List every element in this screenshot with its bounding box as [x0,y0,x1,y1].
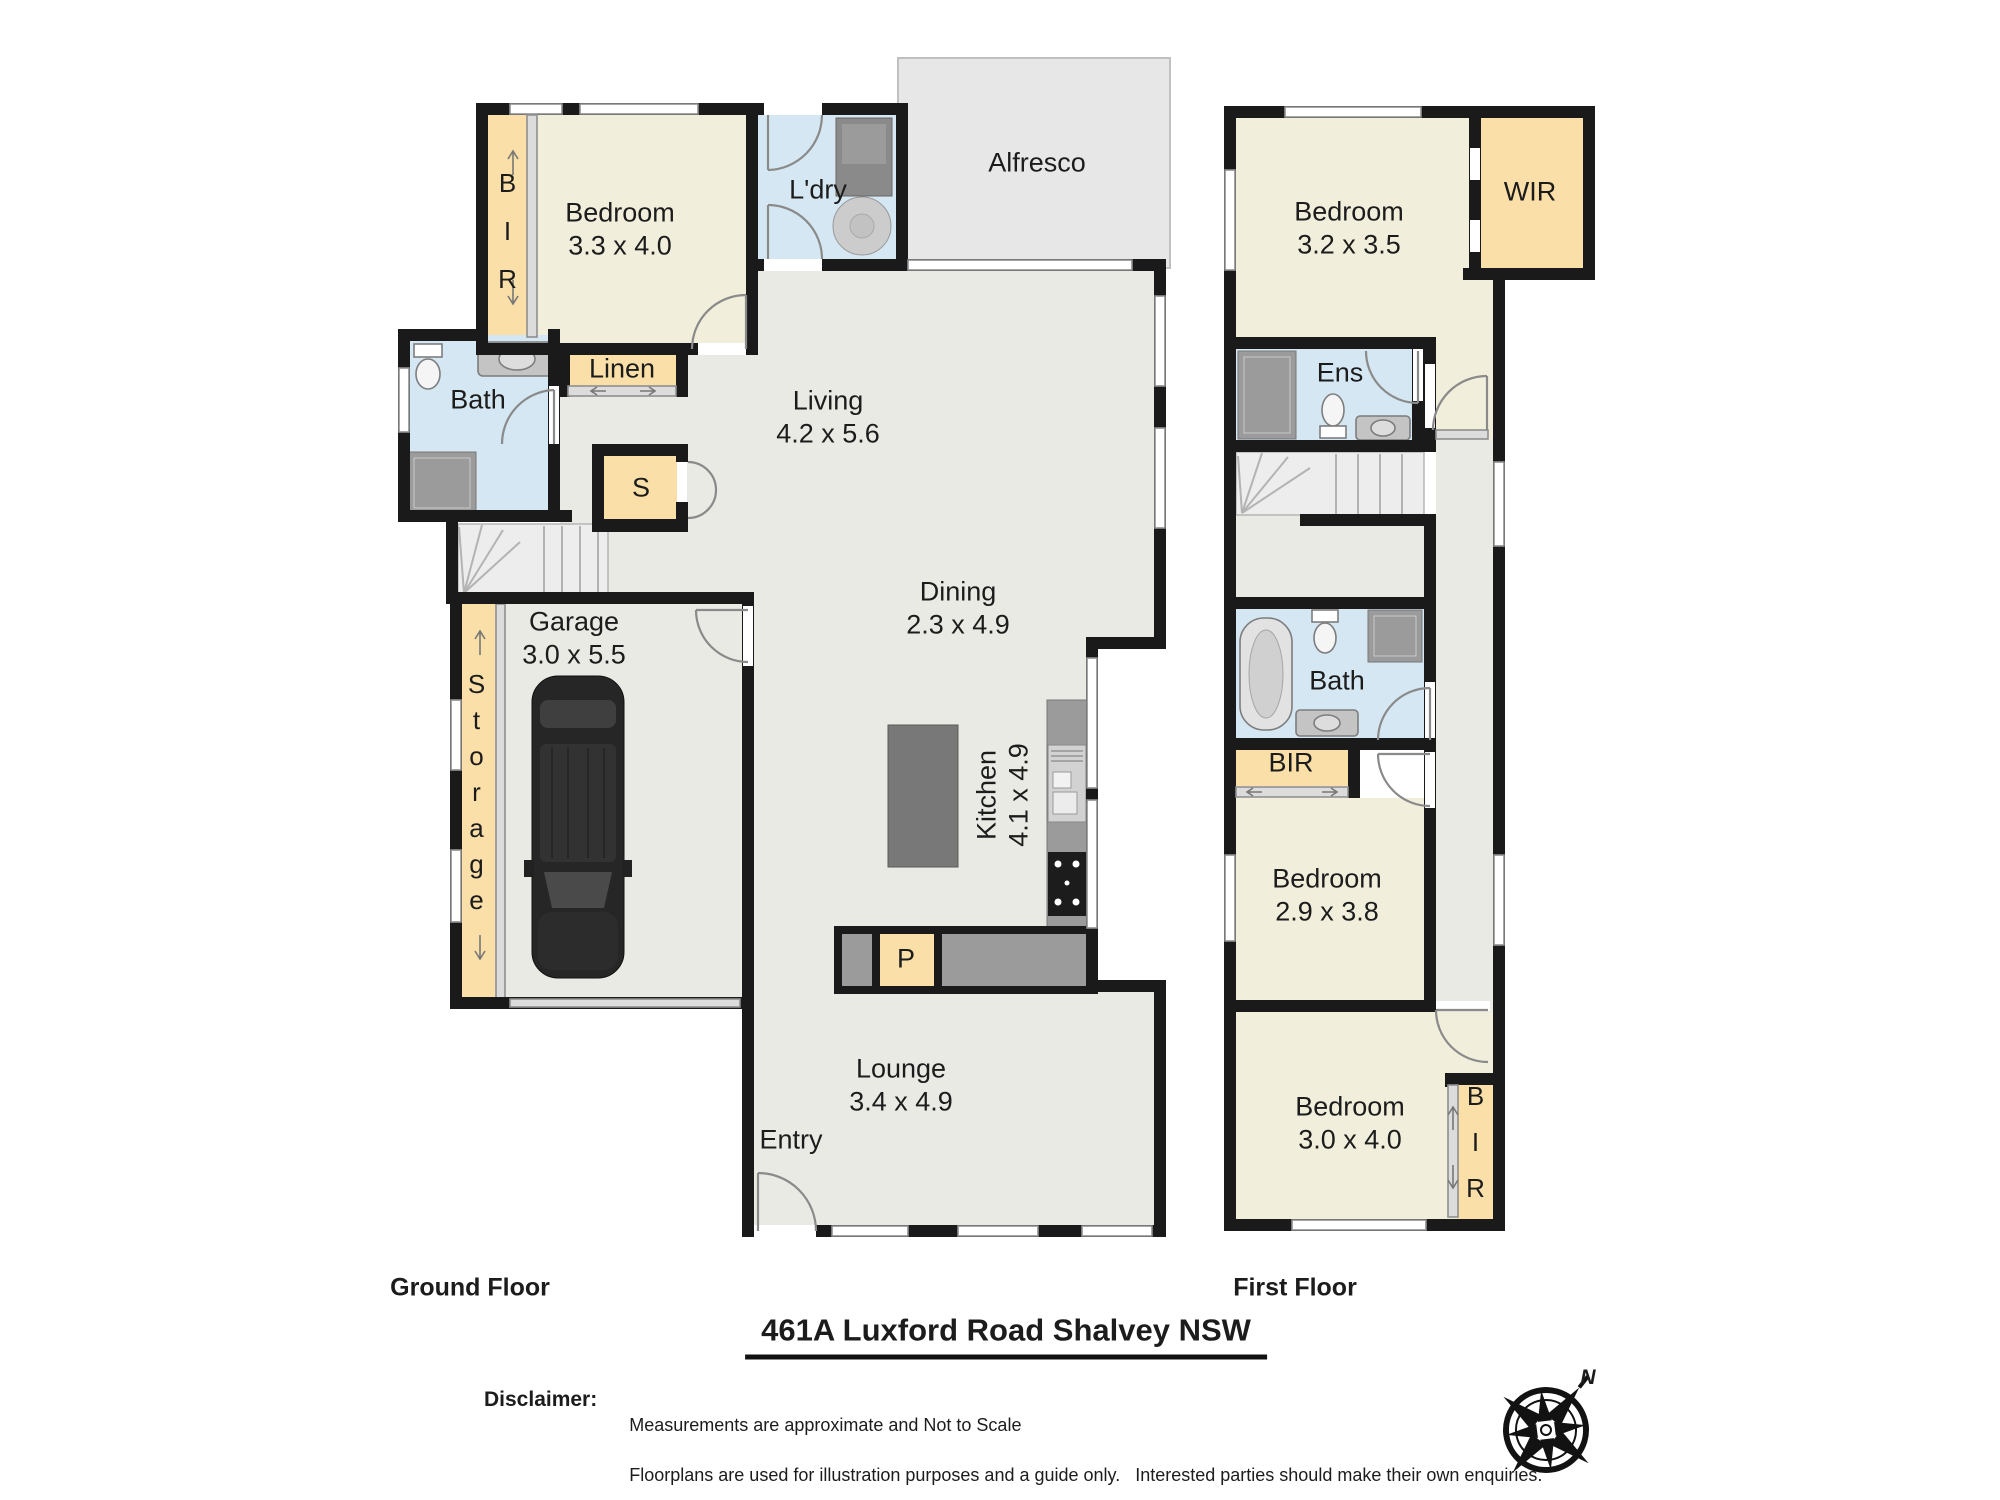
label-first-floor: First Floor [1233,1274,1357,1303]
shower-ground [408,452,476,514]
label-bath-ground: Bath [450,385,506,416]
label-bedroom2-dims: 2.9 x 3.8 [1275,897,1379,928]
label-bir-hall: BIR [1268,748,1313,779]
label-ens: Ens [1317,358,1364,389]
label-store-cupboard: S [632,473,650,504]
disclaimer-block: Disclaimer: Measurements are approximate… [484,1388,1542,1500]
label-bir-bedroom: BIR [1460,1081,1491,1219]
label-bir-ground: BIR [492,168,523,312]
floorplan-page: BIR Bedroom 3.3 x 4.0 L'dry Alfresco Bat… [0,0,2000,1500]
label-dining-dims: 2.3 x 4.9 [906,610,1010,641]
label-kitchen-dims: 4.1 x 4.9 [1003,743,1035,847]
disclaimer-line2: Floorplans are used for illustration pur… [629,1465,1542,1485]
stairs-ground [458,524,608,596]
label-entry: Entry [759,1125,822,1156]
disclaimer-label: Disclaimer: [484,1388,597,1412]
label-bedroom-ground-name: Bedroom [565,198,675,229]
label-bath-first: Bath [1309,666,1365,697]
label-laundry: L'dry [789,175,847,206]
address-title: 461A Luxford Road Shalvey NSW [745,1313,1267,1360]
room-lounge [748,985,1162,1231]
kitchen-island [888,725,958,867]
car [524,676,632,978]
label-pantry: P [897,944,915,975]
stairs-first [1236,452,1424,515]
label-dining-name: Dining [920,577,997,608]
label-bedroom3-dims: 3.0 x 4.0 [1298,1125,1402,1156]
disclaimer-line1: Measurements are approximate and Not to … [629,1415,1021,1435]
label-garage-name: Garage [529,607,619,638]
stove [1048,852,1086,916]
label-garage-dims: 3.0 x 5.5 [522,640,626,671]
label-linen: Linen [589,354,655,385]
first-floor-plan [1224,106,1595,1231]
label-bedroom1-name: Bedroom [1294,197,1404,228]
label-kitchen-name: Kitchen [971,743,1003,847]
label-lounge-dims: 3.4 x 4.9 [849,1087,953,1118]
label-bedroom2-name: Bedroom [1272,864,1382,895]
compass-north-label: N [1580,1366,1595,1390]
label-lounge-name: Lounge [856,1054,946,1085]
label-bedroom1-dims: 3.2 x 3.5 [1297,230,1401,261]
fridge [1048,745,1086,822]
label-living-name: Living [793,386,864,417]
label-ground-floor: Ground Floor [390,1274,550,1303]
label-wir: WIR [1504,177,1556,208]
label-alfresco: Alfresco [988,148,1086,179]
label-storage: Storage [461,669,492,921]
label-kitchen: Kitchen 4.1 x 4.9 [971,743,1036,847]
label-bedroom3-name: Bedroom [1295,1092,1405,1123]
label-living-dims: 4.2 x 5.6 [776,419,880,450]
corridor-first [1436,440,1493,1012]
label-bedroom-ground-dims: 3.3 x 4.0 [568,231,672,262]
